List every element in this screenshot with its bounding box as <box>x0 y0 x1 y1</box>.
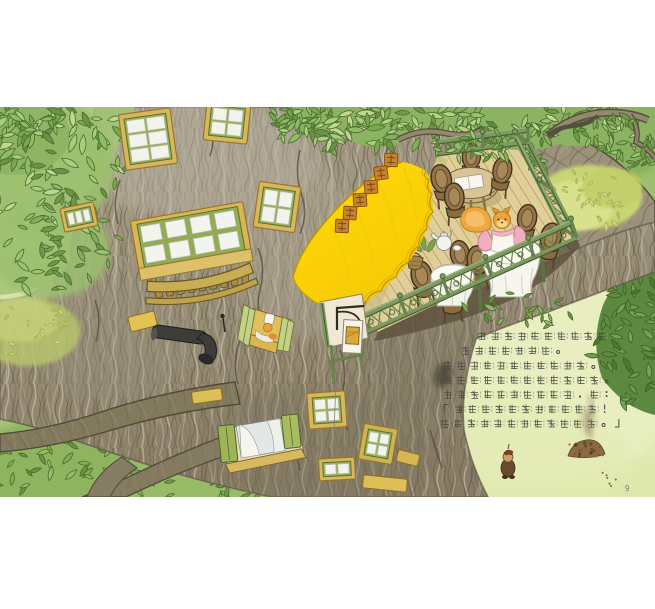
svg-text:9: 9 <box>625 484 630 493</box>
